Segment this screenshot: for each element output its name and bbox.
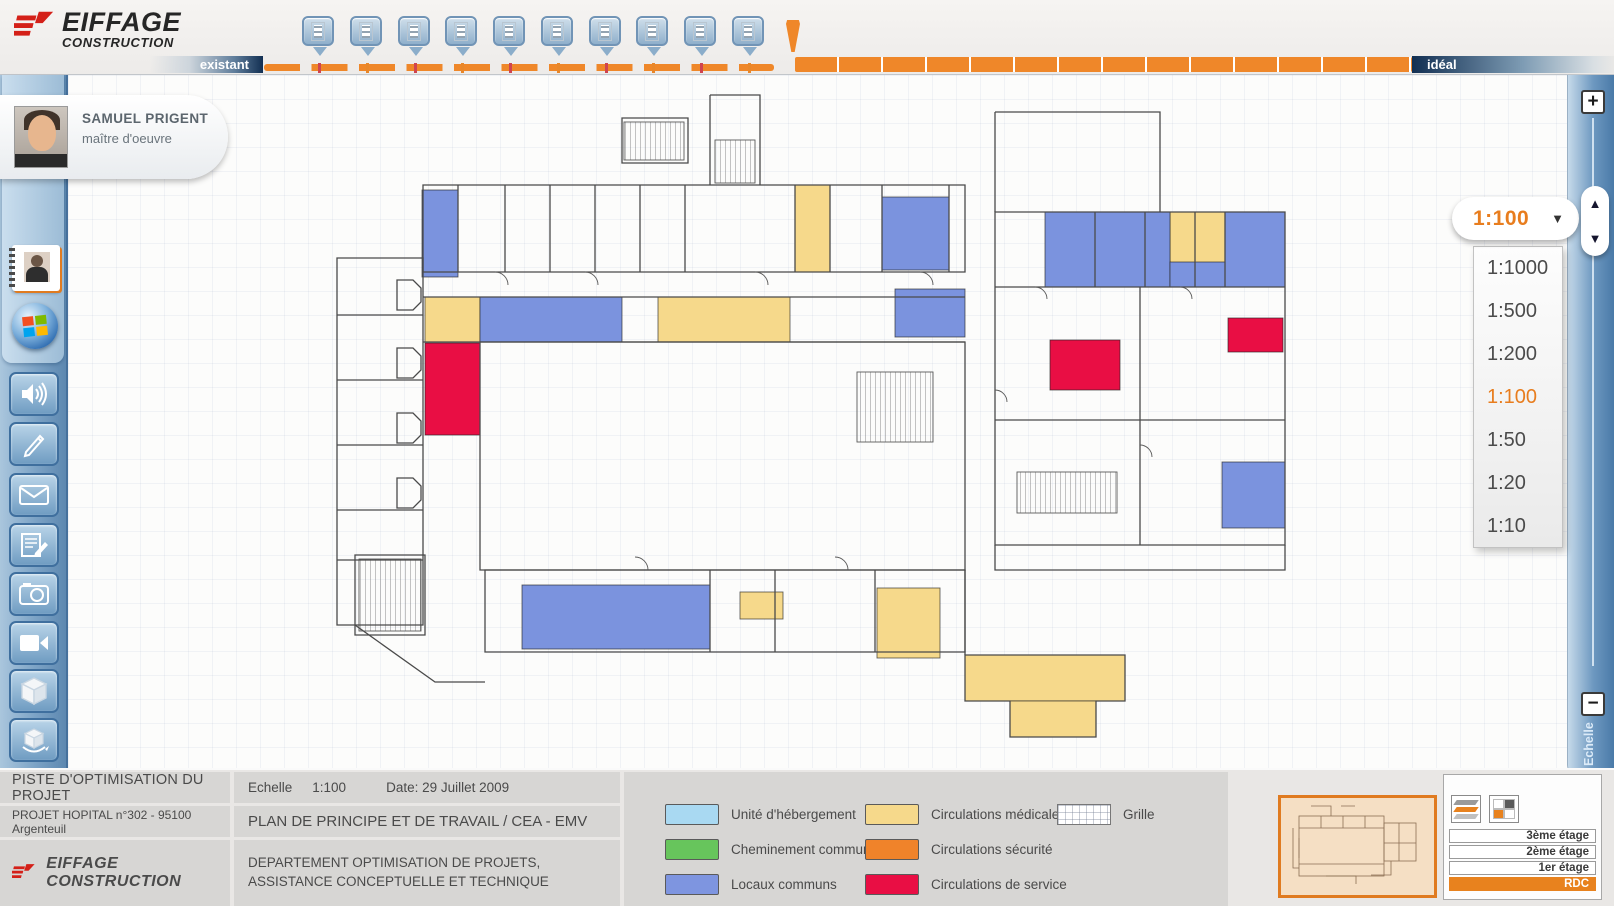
legend-label: Circulations sécurité [931, 842, 1053, 857]
pencil-icon [20, 430, 48, 458]
legend-swatch [865, 804, 919, 825]
camera-icon [18, 581, 50, 607]
document-marker-icon[interactable] [398, 16, 430, 46]
legend-swatch [865, 874, 919, 895]
eiffage-logo-icon-small [12, 861, 36, 885]
pencil-button[interactable] [9, 422, 59, 466]
brand-footer: EIFFAGE CONSTRUCTION [46, 855, 230, 891]
grille-swatch [1057, 804, 1111, 825]
legend-item: Cheminement commun [665, 839, 871, 860]
cube-rotate-icon [19, 725, 49, 755]
floor-row[interactable]: 2ème étage [1449, 845, 1596, 859]
info-title: PISTE D'OPTIMISATION DU PROJET [0, 772, 230, 804]
tab-existant-label: existant [200, 57, 249, 72]
header: EIFFAGE CONSTRUCTION existant idéal [0, 0, 1614, 75]
contact-photo [24, 252, 50, 282]
scale-selected-value: 1:100 [1473, 207, 1529, 231]
windows-flag [22, 315, 48, 337]
legend-item: Locaux communs [665, 874, 837, 895]
camera-button[interactable] [9, 572, 59, 616]
floor-row[interactable]: RDC [1449, 877, 1596, 891]
document-marker-icon[interactable] [350, 16, 382, 46]
legend-swatch [665, 839, 719, 860]
eiffage-logo-icon [14, 9, 56, 45]
project-cell: PROJET HOPITAL n°302 - 95100 Argenteuil [0, 806, 230, 837]
minimap-thumbnail[interactable] [1278, 795, 1437, 898]
video-button[interactable] [9, 621, 59, 665]
cube-3d-icon [19, 676, 49, 706]
timeline-markers [302, 16, 764, 72]
quadrant-view-button[interactable] [1489, 795, 1519, 823]
profile-card[interactable]: SAMUEL PRIGENT maître d'oeuvre [0, 95, 228, 179]
scroll-up-button[interactable]: ▲ [1589, 196, 1602, 211]
legend-swatch [665, 874, 719, 895]
plan-zones [422, 185, 1285, 737]
checkerboard-icon [1493, 799, 1515, 819]
notes-button[interactable] [9, 523, 59, 567]
legend-label: Cheminement commun [731, 842, 871, 857]
profile-role: maître d'oeuvre [82, 131, 172, 146]
legend-label: Locaux communs [731, 877, 837, 892]
document-marker-icon[interactable] [493, 16, 525, 46]
scale-dropdown: 1:10001:5001:2001:1001:501:201:10 [1473, 246, 1563, 548]
footer: PISTE D'OPTIMISATION DU PROJET Echelle 1… [0, 768, 1614, 906]
department-line1: DEPARTEMENT OPTIMISATION DE PROJETS, [248, 854, 549, 873]
document-marker-icon[interactable] [302, 16, 334, 46]
plan-canvas[interactable] [68, 75, 1567, 768]
department-cell: DEPARTEMENT OPTIMISATION DE PROJETS, ASS… [234, 840, 620, 906]
tab-ideal-label: idéal [1427, 57, 1457, 72]
scale-option[interactable]: 1:1000 [1474, 247, 1562, 290]
echelle-value: 1:100 [312, 780, 346, 795]
scale-option[interactable]: 1:100 [1474, 376, 1562, 419]
rail-label: Echelle [1582, 714, 1598, 766]
legend-label: Circulations médicale [931, 807, 1059, 822]
zoom-out-button[interactable]: − [1581, 692, 1605, 716]
project-label: PROJET HOPITAL n°302 - 95100 Argenteuil [0, 808, 230, 836]
document-marker-icon[interactable] [636, 16, 668, 46]
scale-selector[interactable]: 1:100 ▼ [1452, 197, 1579, 240]
windows-logo-icon[interactable] [12, 303, 58, 349]
legend-item: Circulations sécurité [865, 839, 1053, 860]
timeline-solid-track [795, 57, 1412, 72]
tab-existant[interactable]: existant [150, 56, 263, 73]
scroll-down-button[interactable]: ▼ [1589, 231, 1602, 246]
legend-item: Circulations médicale [865, 804, 1059, 825]
speaker-icon [19, 381, 49, 407]
zoom-in-button[interactable]: + [1581, 90, 1605, 114]
scale-scroll-buttons: ▲ ▼ [1581, 186, 1609, 256]
minimap-sketch [1281, 798, 1434, 895]
legend-item: Circulations de service [865, 874, 1067, 895]
legend-panel: Unité d'hébergementCheminement communLoc… [624, 772, 1228, 906]
info-title-cell: PISTE D'OPTIMISATION DU PROJET [0, 772, 230, 803]
document-edit-icon [19, 531, 49, 559]
document-marker-icon[interactable] [445, 16, 477, 46]
document-marker-icon[interactable] [589, 16, 621, 46]
plan-title-cell: PLAN DE PRINCIPE ET DE TRAVAIL / CEA - E… [234, 806, 620, 837]
floor-list: 3ème étage2ème étage1er étageRDC [1449, 829, 1596, 893]
timeline-warning-marker[interactable] [786, 20, 800, 52]
legend-swatch [665, 804, 719, 825]
echelle-label: Echelle [234, 780, 292, 795]
legend-item: Unité d'hébergement [665, 804, 856, 825]
zoom-rail [1567, 75, 1614, 775]
mail-icon [18, 483, 50, 507]
contacts-book-icon[interactable] [12, 245, 60, 291]
floor-row[interactable]: 1er étage [1449, 861, 1596, 875]
legend-swatch [865, 839, 919, 860]
mail-button[interactable] [9, 473, 59, 517]
scale-option[interactable]: 1:500 [1474, 290, 1562, 333]
profile-name: SAMUEL PRIGENT [82, 111, 208, 126]
grille-label: Grille [1123, 807, 1155, 822]
legend-label: Unité d'hébergement [731, 807, 856, 822]
floor-plan [335, 90, 1300, 745]
plan-title: PLAN DE PRINCIPE ET DE TRAVAIL / CEA - E… [234, 813, 587, 830]
floor-selector-panel: 3ème étage2ème étage1er étageRDC [1443, 774, 1602, 900]
volume-button[interactable] [9, 372, 59, 416]
eiffage-logo: EIFFAGE CONSTRUCTION [14, 9, 181, 50]
book-coil [9, 248, 15, 288]
cube-rotate-button[interactable] [9, 718, 59, 762]
document-marker-icon[interactable] [684, 16, 716, 46]
brand-cell: EIFFAGE CONSTRUCTION [0, 840, 230, 906]
document-marker-icon[interactable] [541, 16, 573, 46]
scale-option[interactable]: 1:20 [1474, 462, 1562, 505]
document-marker-icon[interactable] [732, 16, 764, 46]
brand-name: EIFFAGE [62, 9, 181, 35]
tab-ideal[interactable]: idéal [1412, 56, 1614, 73]
scale-option[interactable]: 1:50 [1474, 419, 1562, 462]
brand-subtitle: CONSTRUCTION [62, 35, 181, 50]
scale-option[interactable]: 1:10 [1474, 505, 1562, 548]
video-camera-icon [18, 631, 50, 655]
chevron-down-icon: ▼ [1551, 211, 1564, 226]
app-window: EIFFAGE CONSTRUCTION existant idéal 29 [0, 0, 1614, 906]
layers-icon-button[interactable] [1451, 795, 1481, 823]
avatar [14, 106, 68, 168]
date-value: Date: 29 Juillet 2009 [386, 780, 509, 795]
cube-button[interactable] [9, 669, 59, 713]
legend-label: Circulations de service [931, 877, 1067, 892]
scale-option[interactable]: 1:200 [1474, 333, 1562, 376]
floor-row[interactable]: 3ème étage [1449, 829, 1596, 843]
legend-item-grille: Grille [1057, 804, 1155, 825]
info-scale-date-cell: Echelle 1:100 Date: 29 Juillet 2009 [234, 772, 620, 803]
department-line2: ASSISTANCE CONCEPTUELLE ET TECHNIQUE [248, 873, 549, 892]
